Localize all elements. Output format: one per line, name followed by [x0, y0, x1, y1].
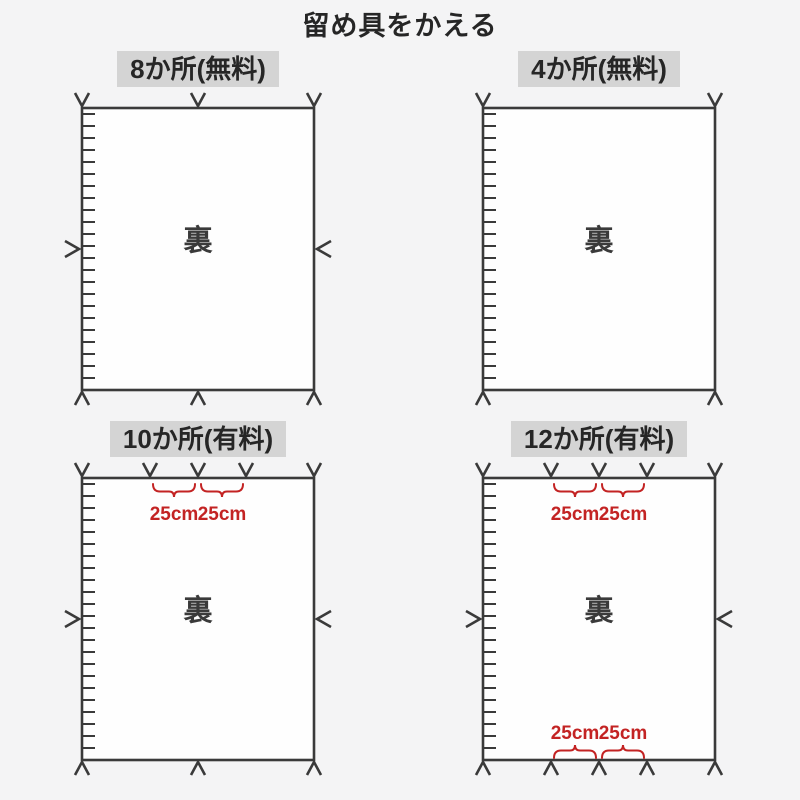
fastener-mark-icon — [75, 93, 89, 106]
right-fastener-mark-icon — [317, 611, 331, 627]
fastener-mark-icon — [191, 93, 205, 106]
fastener-mark-icon — [191, 392, 205, 405]
panel-label-row: 12か所(有料) — [459, 420, 739, 458]
right-fastener-mark-icon — [317, 241, 331, 257]
back-side-label: 裏 — [584, 593, 614, 627]
page-title: 留め具をかえる — [0, 4, 800, 43]
top-fastener-marks — [75, 463, 321, 476]
fastener-mark-icon — [143, 463, 157, 476]
measure-label: 25cm — [198, 504, 247, 525]
left-fastener-mark-icon — [65, 611, 79, 627]
top-fastener-marks — [75, 93, 321, 106]
fastener-mark-icon — [476, 93, 490, 106]
futon-diagram: 25cm 25cm 裏 — [58, 458, 338, 780]
futon-diagram: 25cm 25cm 25cm 25cm 裏 — [459, 458, 739, 780]
fastener-mark-icon — [708, 93, 722, 106]
panel-label: 4か所(無料) — [518, 51, 680, 87]
fastener-mark-icon — [592, 463, 606, 476]
back-side-label: 裏 — [183, 223, 213, 257]
panel-12-spots-paid: 12か所(有料) 25cm 25cm 25cm 25c — [459, 420, 739, 780]
bottom-fastener-marks — [75, 762, 321, 775]
fastener-mark-icon — [476, 463, 490, 476]
fastener-mark-icon — [75, 392, 89, 405]
panel-10-spots-paid: 10か所(有料) 25cm 25cm 裏 — [58, 420, 338, 780]
fastener-mark-icon — [75, 463, 89, 476]
fastener-mark-icon — [307, 392, 321, 405]
fastener-mark-icon — [592, 762, 606, 775]
panel-label-row: 10か所(有料) — [58, 420, 338, 458]
fastener-mark-icon — [708, 463, 722, 476]
fastener-mark-icon — [476, 392, 490, 405]
fastener-mark-icon — [75, 762, 89, 775]
bottom-fastener-marks — [75, 392, 321, 405]
back-side-label: 裏 — [584, 223, 614, 257]
fastener-mark-icon — [708, 762, 722, 775]
bottom-fastener-marks — [476, 762, 722, 775]
fastener-mark-icon — [476, 762, 490, 775]
top-fastener-marks — [476, 93, 722, 106]
panel-label-row: 4か所(無料) — [459, 50, 739, 88]
measure-label: 25cm — [599, 723, 648, 744]
futon-diagram: 裏 — [459, 88, 739, 410]
measure-label: 25cm — [150, 504, 199, 525]
back-side-label: 裏 — [183, 593, 213, 627]
fastener-mark-icon — [708, 392, 722, 405]
fastener-mark-icon — [307, 463, 321, 476]
measure-label: 25cm — [551, 504, 600, 525]
fastener-mark-icon — [307, 93, 321, 106]
left-fastener-mark-icon — [466, 611, 480, 627]
panel-4-spots-free: 4か所(無料) 裏 — [459, 50, 739, 410]
fastener-mark-icon — [307, 762, 321, 775]
fastener-mark-icon — [640, 463, 654, 476]
fastener-mark-icon — [544, 762, 558, 775]
right-fastener-mark-icon — [718, 611, 732, 627]
fastener-mark-icon — [191, 762, 205, 775]
fastener-mark-icon — [239, 463, 253, 476]
left-fastener-mark-icon — [65, 241, 79, 257]
measure-label: 25cm — [551, 723, 600, 744]
fastener-mark-icon — [640, 762, 654, 775]
panel-label-row: 8か所(無料) — [58, 50, 338, 88]
futon-diagram: 裏 — [58, 88, 338, 410]
top-fastener-marks — [476, 463, 722, 476]
fastener-mark-icon — [544, 463, 558, 476]
panel-8-spots-free: 8か所(無料) 裏 — [58, 50, 338, 410]
bottom-fastener-marks — [476, 392, 722, 405]
fastener-mark-icon — [191, 463, 205, 476]
panel-label: 12か所(有料) — [511, 421, 687, 457]
measure-label: 25cm — [599, 504, 648, 525]
panel-label: 10か所(有料) — [110, 421, 286, 457]
panel-label: 8か所(無料) — [117, 51, 279, 87]
